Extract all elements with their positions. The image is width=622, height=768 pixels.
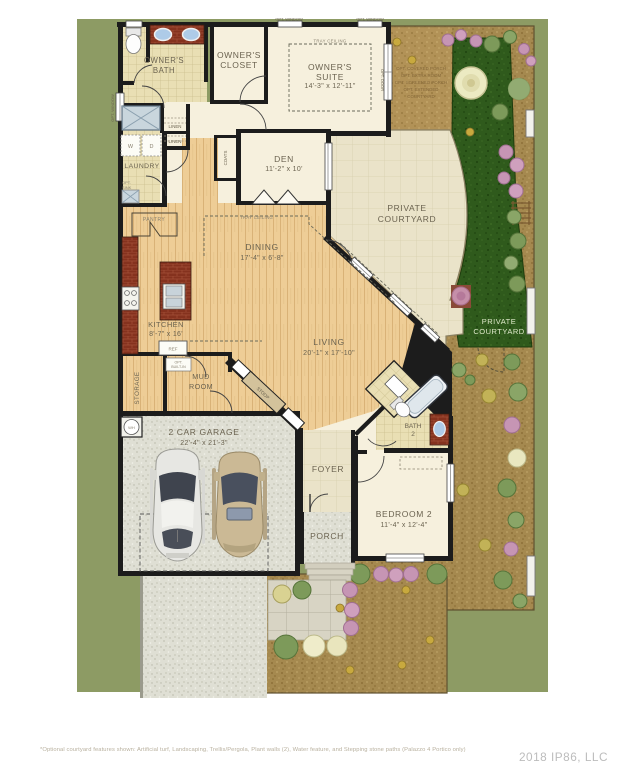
svg-text:BEDROOM 2: BEDROOM 2 (376, 509, 432, 519)
svg-text:2018 IP86, LLC: 2018 IP86, LLC (519, 750, 608, 764)
svg-text:*Optional courtyard features s: *Optional courtyard features shown: Arti… (40, 747, 466, 753)
svg-text:TRAY CEILING: TRAY CEILING (313, 39, 346, 44)
svg-text:11'-4" x 12'-4": 11'-4" x 12'-4" (380, 522, 427, 529)
svg-text:COURTYARD: COURTYARD (378, 214, 436, 224)
svg-text:LAUNDRY: LAUNDRY (124, 163, 159, 170)
svg-text:OPT. DOOR: OPT. DOOR (380, 69, 385, 91)
svg-text:REF: REF (169, 347, 178, 352)
svg-text:OPT. WINDOW: OPT. WINDOW (356, 17, 384, 22)
svg-text:11'-2" x 10': 11'-2" x 10' (265, 166, 302, 173)
svg-text:20'-1" x 17'-10": 20'-1" x 17'-10" (303, 350, 355, 357)
svg-text:PANTRY: PANTRY (143, 217, 165, 223)
svg-text:LIVING: LIVING (313, 337, 344, 347)
svg-text:TRAY CEILING: TRAY CEILING (240, 215, 273, 220)
svg-text:W: W (128, 144, 134, 150)
svg-text:22'-4" x 21'-3": 22'-4" x 21'-3" (180, 440, 228, 447)
svg-text:KITCHEN: KITCHEN (148, 320, 184, 329)
svg-text:PORCH: PORCH (310, 531, 344, 541)
svg-text:MUD: MUD (192, 372, 210, 381)
svg-text:OPT. EXTRA ROOM: OPT. EXTRA ROOM (401, 73, 442, 78)
svg-text:COURTYARD: COURTYARD (473, 327, 524, 336)
svg-text:CLOSET: CLOSET (220, 60, 258, 70)
svg-text:OWNER'S: OWNER'S (308, 62, 352, 72)
svg-text:BATH: BATH (153, 66, 175, 75)
svg-text:OPT. COVERED PORCH: OPT. COVERED PORCH (396, 66, 446, 71)
svg-text:SUITE: SUITE (316, 72, 344, 82)
svg-text:BUILT-IN: BUILT-IN (171, 365, 186, 369)
svg-text:OPT.: OPT. (175, 361, 183, 365)
svg-text:OWNER'S: OWNER'S (144, 56, 184, 65)
svg-text:DINING: DINING (245, 242, 278, 252)
svg-text:OWNER'S: OWNER'S (217, 50, 261, 60)
svg-text:8'-7" x 16': 8'-7" x 16' (149, 331, 183, 338)
svg-text:OPT. WINDOW: OPT. WINDOW (110, 94, 115, 122)
svg-text:2 CAR GARAGE: 2 CAR GARAGE (169, 427, 240, 437)
svg-text:OPT. SCREENED PORCH: OPT. SCREENED PORCH (395, 80, 447, 85)
svg-text:LINEN: LINEN (169, 124, 182, 129)
svg-text:PRIVATE: PRIVATE (482, 317, 516, 326)
svg-text:FOYER: FOYER (312, 464, 344, 474)
svg-text:STORAGE: STORAGE (134, 372, 141, 405)
svg-text:PRIVATE: PRIVATE (387, 203, 426, 213)
svg-text:D: D (150, 144, 154, 150)
svg-text:LINEN: LINEN (169, 139, 182, 144)
svg-text:WH: WH (128, 425, 135, 430)
svg-text:BATH: BATH (405, 423, 422, 430)
svg-text:COURTYARD: COURTYARD (407, 94, 434, 99)
svg-text:2: 2 (411, 431, 415, 438)
svg-text:SINK: SINK (122, 185, 132, 190)
svg-text:OPT. WINDOW: OPT. WINDOW (275, 17, 303, 22)
svg-text:DEN: DEN (274, 154, 294, 164)
svg-text:ROOM: ROOM (189, 382, 213, 391)
svg-text:17'-4" x 6'-8": 17'-4" x 6'-8" (240, 255, 284, 262)
svg-text:OPT. EXTENDED: OPT. EXTENDED (404, 87, 439, 92)
svg-text:COATS: COATS (223, 151, 228, 166)
svg-text:14'-3" x 12'-11": 14'-3" x 12'-11" (304, 83, 355, 90)
